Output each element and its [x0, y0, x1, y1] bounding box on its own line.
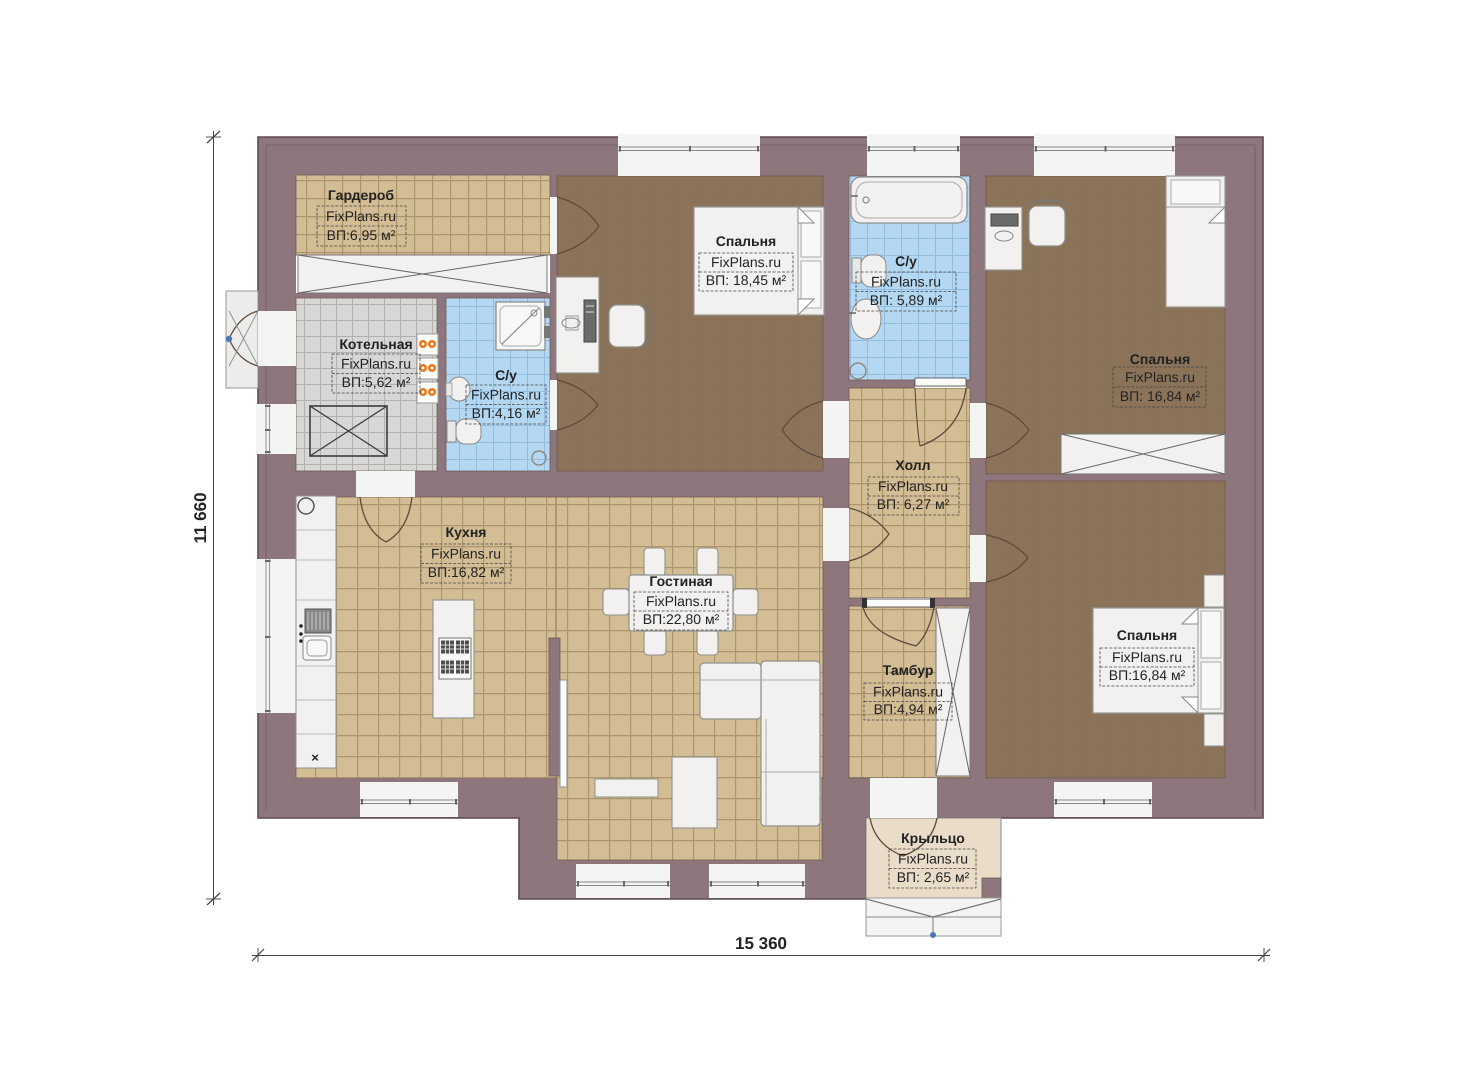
svg-text:Котельная: Котельная — [339, 336, 412, 352]
svg-text:Спальня: Спальня — [716, 233, 776, 249]
svg-text:ВП:5,62 м²: ВП:5,62 м² — [342, 374, 411, 390]
svg-text:FixPlans.ru: FixPlans.ru — [711, 254, 781, 270]
svg-text:FixPlans.ru: FixPlans.ru — [873, 684, 943, 700]
svg-text:FixPlans.ru: FixPlans.ru — [1112, 649, 1182, 665]
svg-text:Кухня: Кухня — [446, 524, 487, 540]
svg-text:ВП: 5,89 м²: ВП: 5,89 м² — [870, 292, 943, 308]
svg-text:ВП:16,84 м²: ВП:16,84 м² — [1109, 667, 1186, 683]
svg-text:FixPlans.ru: FixPlans.ru — [326, 208, 396, 224]
svg-text:11 660: 11 660 — [191, 492, 210, 543]
svg-text:С/у: С/у — [495, 367, 517, 383]
svg-text:Гостиная: Гостиная — [649, 573, 712, 589]
svg-text:ВП: 2,65 м²: ВП: 2,65 м² — [897, 869, 970, 885]
svg-text:Холл: Холл — [895, 457, 930, 473]
svg-text:ВП:6,95 м²: ВП:6,95 м² — [327, 227, 396, 243]
svg-text:Крыльцо: Крыльцо — [901, 830, 965, 846]
svg-text:FixPlans.ru: FixPlans.ru — [471, 387, 541, 403]
svg-text:×: × — [311, 750, 319, 765]
svg-text:ВП:4,16 м²: ВП:4,16 м² — [472, 405, 541, 421]
svg-text:Гардероб: Гардероб — [328, 187, 395, 203]
svg-text:15 360: 15 360 — [735, 934, 787, 953]
svg-text:FixPlans.ru: FixPlans.ru — [871, 274, 941, 290]
svg-text:ВП: 16,84 м²: ВП: 16,84 м² — [1120, 388, 1201, 404]
svg-text:Спальня: Спальня — [1130, 351, 1190, 367]
svg-text:Тамбур: Тамбур — [883, 662, 934, 678]
svg-text:FixPlans.ru: FixPlans.ru — [341, 356, 411, 372]
svg-text:FixPlans.ru: FixPlans.ru — [646, 593, 716, 609]
svg-text:FixPlans.ru: FixPlans.ru — [878, 478, 948, 494]
svg-text:ВП:22,80 м²: ВП:22,80 м² — [643, 611, 720, 627]
svg-text:FixPlans.ru: FixPlans.ru — [431, 546, 501, 562]
svg-text:ВП: 6,27 м²: ВП: 6,27 м² — [877, 496, 950, 512]
svg-text:ВП:4,94 м²: ВП:4,94 м² — [874, 701, 943, 717]
svg-text:ВП:16,82 м²: ВП:16,82 м² — [428, 564, 505, 580]
svg-text:FixPlans.ru: FixPlans.ru — [1125, 369, 1195, 385]
svg-text:Спальня: Спальня — [1117, 627, 1177, 643]
svg-text:ВП: 18,45 м²: ВП: 18,45 м² — [706, 272, 787, 288]
svg-text:С/у: С/у — [895, 253, 917, 269]
svg-text:FixPlans.ru: FixPlans.ru — [898, 851, 968, 867]
